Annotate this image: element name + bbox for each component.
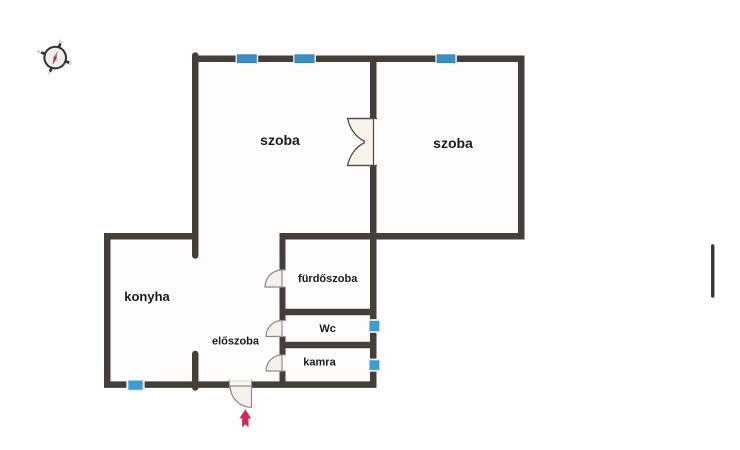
svg-text:előszoba: előszoba (212, 336, 260, 348)
svg-text:kamra: kamra (303, 357, 336, 369)
svg-text:konyha: konyha (124, 289, 170, 304)
svg-text:szoba: szoba (260, 132, 300, 148)
svg-text:fürdőszoba: fürdőszoba (298, 273, 358, 285)
svg-text:szoba: szoba (433, 135, 473, 151)
svg-text:Wc: Wc (319, 323, 336, 335)
